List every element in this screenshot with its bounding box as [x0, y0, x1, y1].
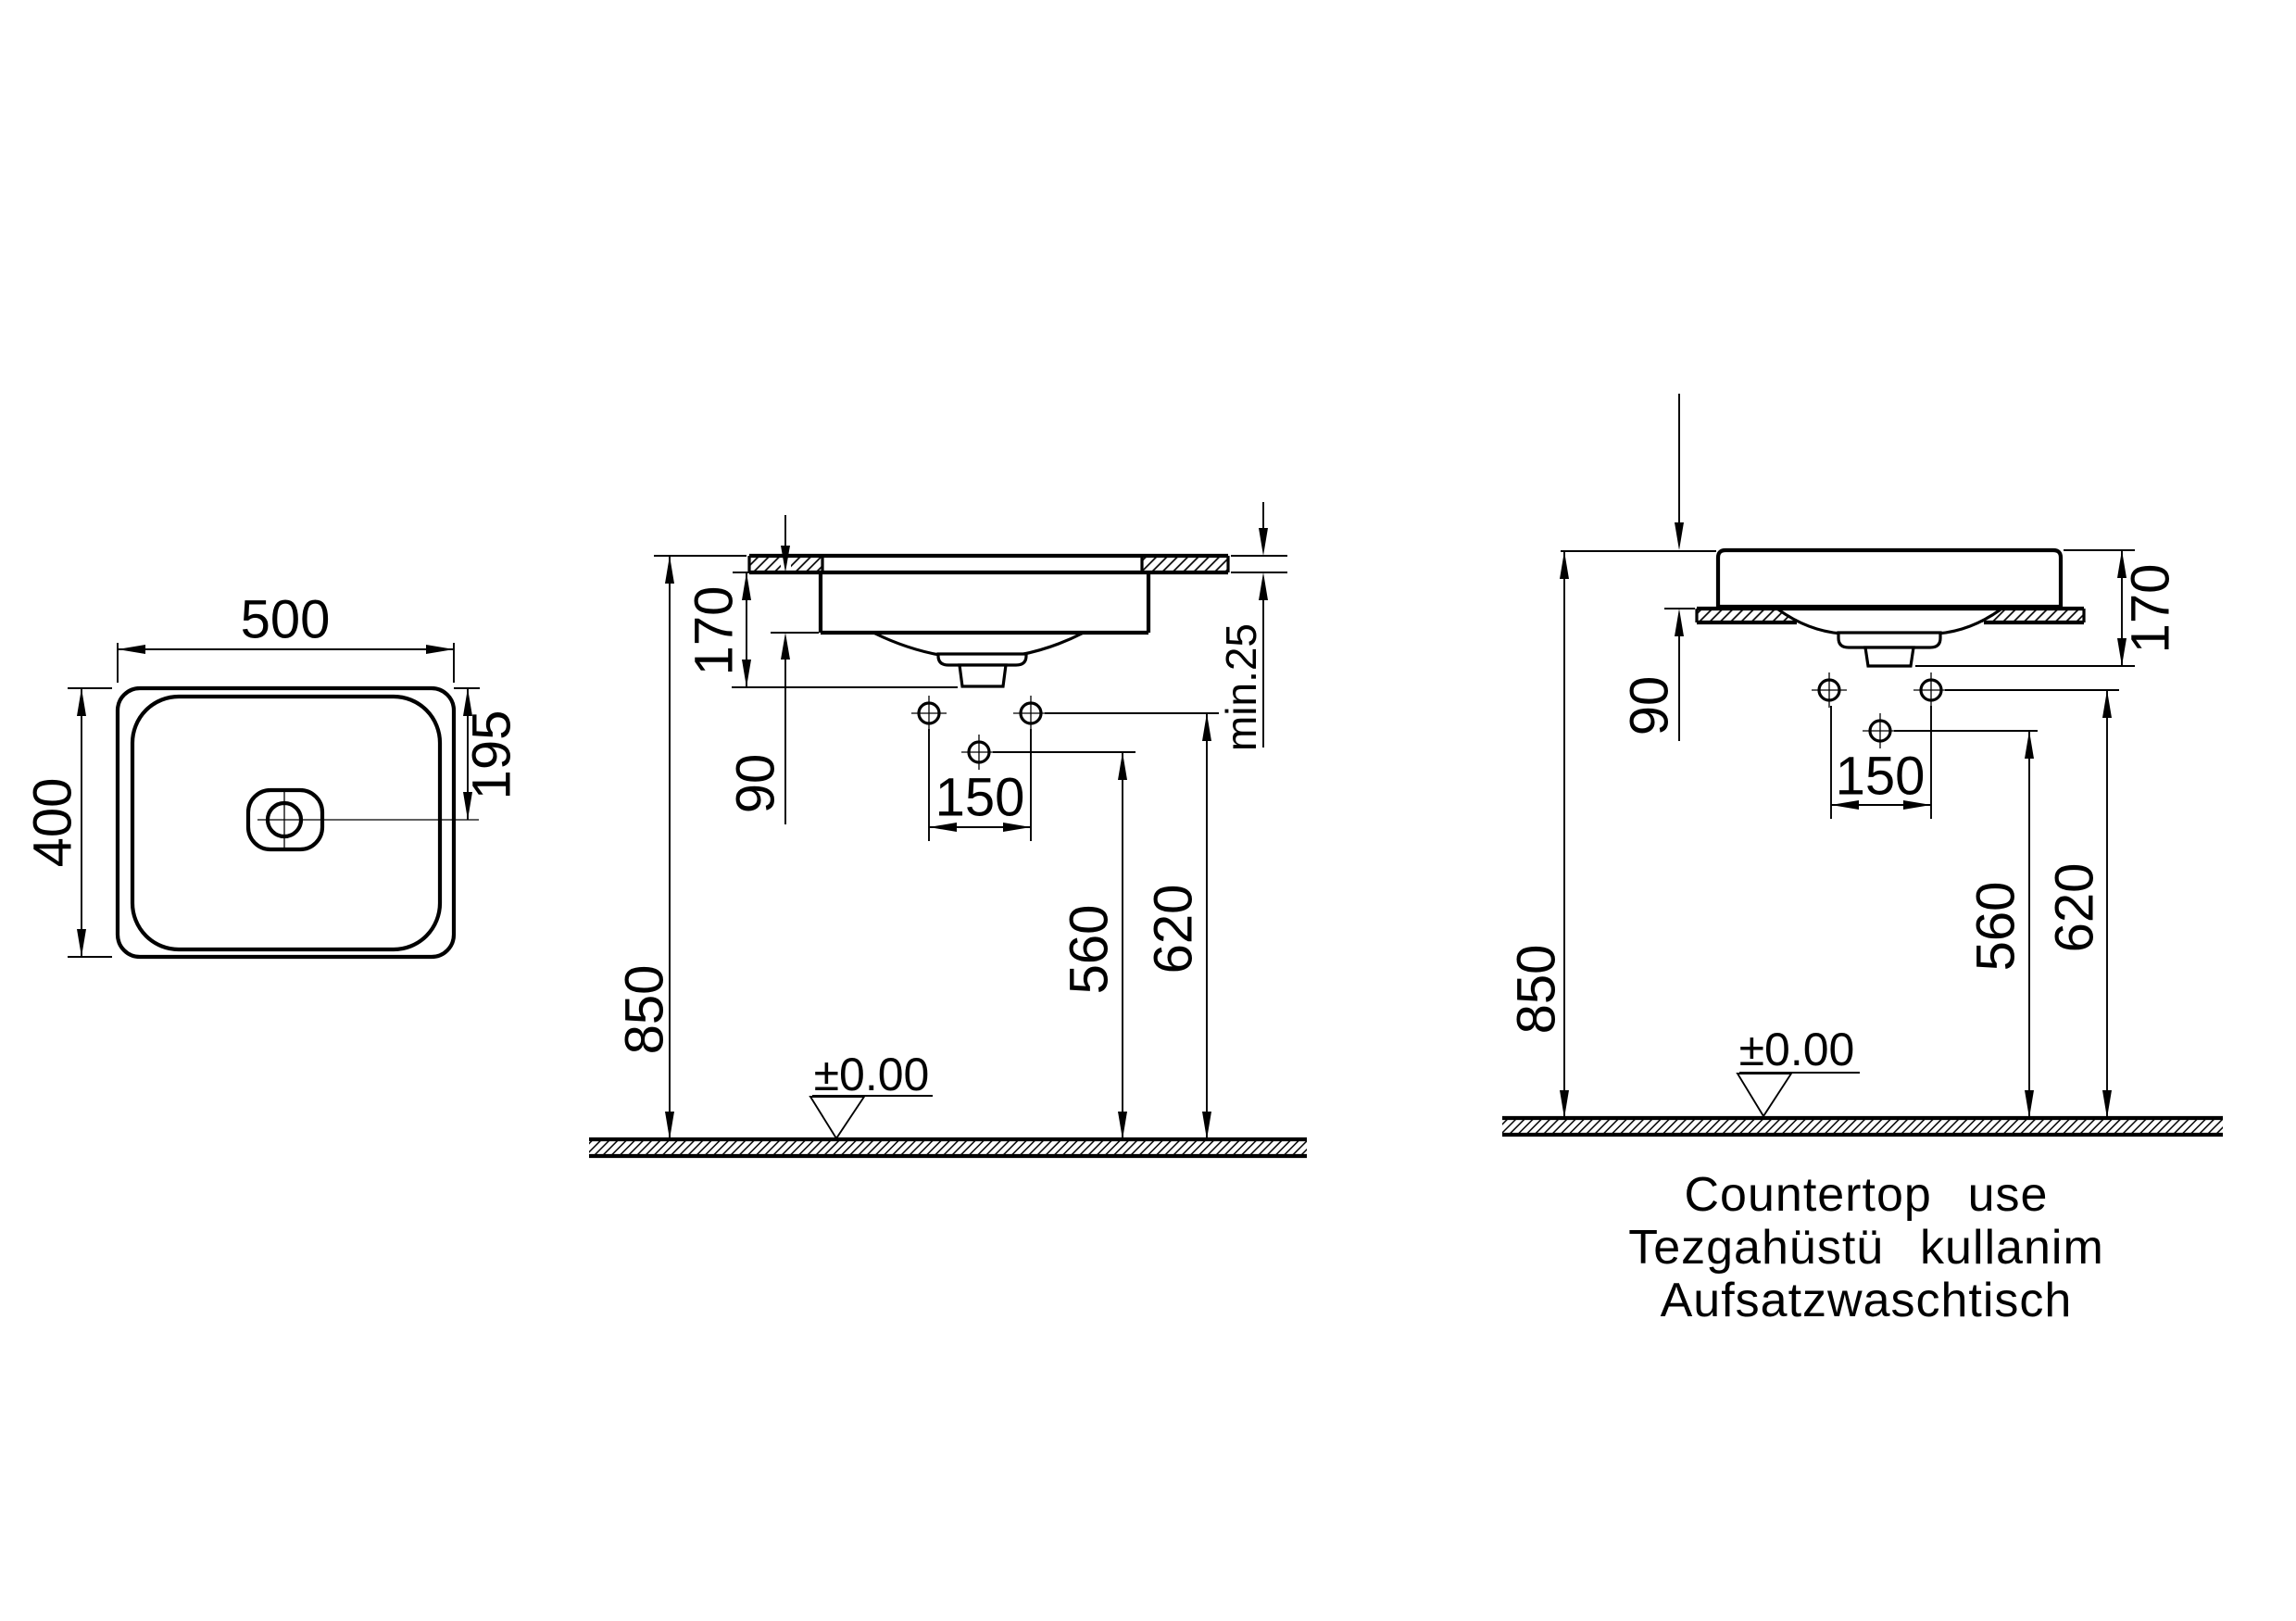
dim-label-560-recessed: 560	[1060, 905, 1120, 995]
caption-line-de: Aufsatzwaschtisch	[1661, 1274, 2073, 1327]
sheet-background	[0, 0, 2296, 1621]
countertop-hatch-right	[1143, 557, 1227, 572]
floor-level-label-recessed: ±0.00	[814, 1049, 930, 1100]
caption-line-en: Countertop use	[1685, 1168, 2049, 1222]
dim-label-90-countertop: 90	[1620, 676, 1680, 736]
dim-label-90-recessed: 90	[726, 754, 786, 814]
drawing-sheet: 500 400 195	[0, 0, 2296, 1621]
drain-pipe	[960, 665, 1006, 686]
floor-recessed	[589, 1139, 1307, 1156]
dim-label-150-countertop: 150	[1836, 747, 1926, 807]
dim-label-400: 400	[23, 778, 83, 868]
caption: Countertop use Tezgahüstü kullanim Aufsa…	[1628, 1168, 2104, 1327]
dim-label-170-recessed: 170	[684, 586, 745, 676]
dim-label-850-recessed: 850	[615, 965, 675, 1055]
dim-label-500: 500	[241, 590, 331, 650]
countertop-hatch-left-a	[750, 557, 781, 572]
drain-flange	[1838, 633, 1940, 647]
dim-label-150-recessed: 150	[935, 768, 1025, 828]
dim-label-560-countertop: 560	[1966, 882, 2026, 972]
dim-label-170-countertop: 170	[2121, 564, 2181, 654]
dim-label-620-recessed: 620	[1144, 885, 1204, 974]
floor-countertop	[1502, 1118, 2223, 1135]
caption-line-tr: Tezgahüstü kullanim	[1628, 1221, 2104, 1275]
dim-label-850-countertop: 850	[1507, 945, 1567, 1035]
dim-label-min25: min.25	[1217, 623, 1265, 751]
drain-flange	[938, 654, 1026, 665]
dim-label-620-countertop: 620	[2045, 863, 2105, 953]
washbasin-technical-drawing: 500 400 195	[0, 0, 2296, 1621]
drain-pipe	[1865, 647, 1913, 666]
dim-label-195: 195	[462, 710, 522, 800]
countertop-hatch-left-b	[791, 557, 822, 572]
floor-level-label-countertop: ±0.00	[1739, 1024, 1855, 1075]
